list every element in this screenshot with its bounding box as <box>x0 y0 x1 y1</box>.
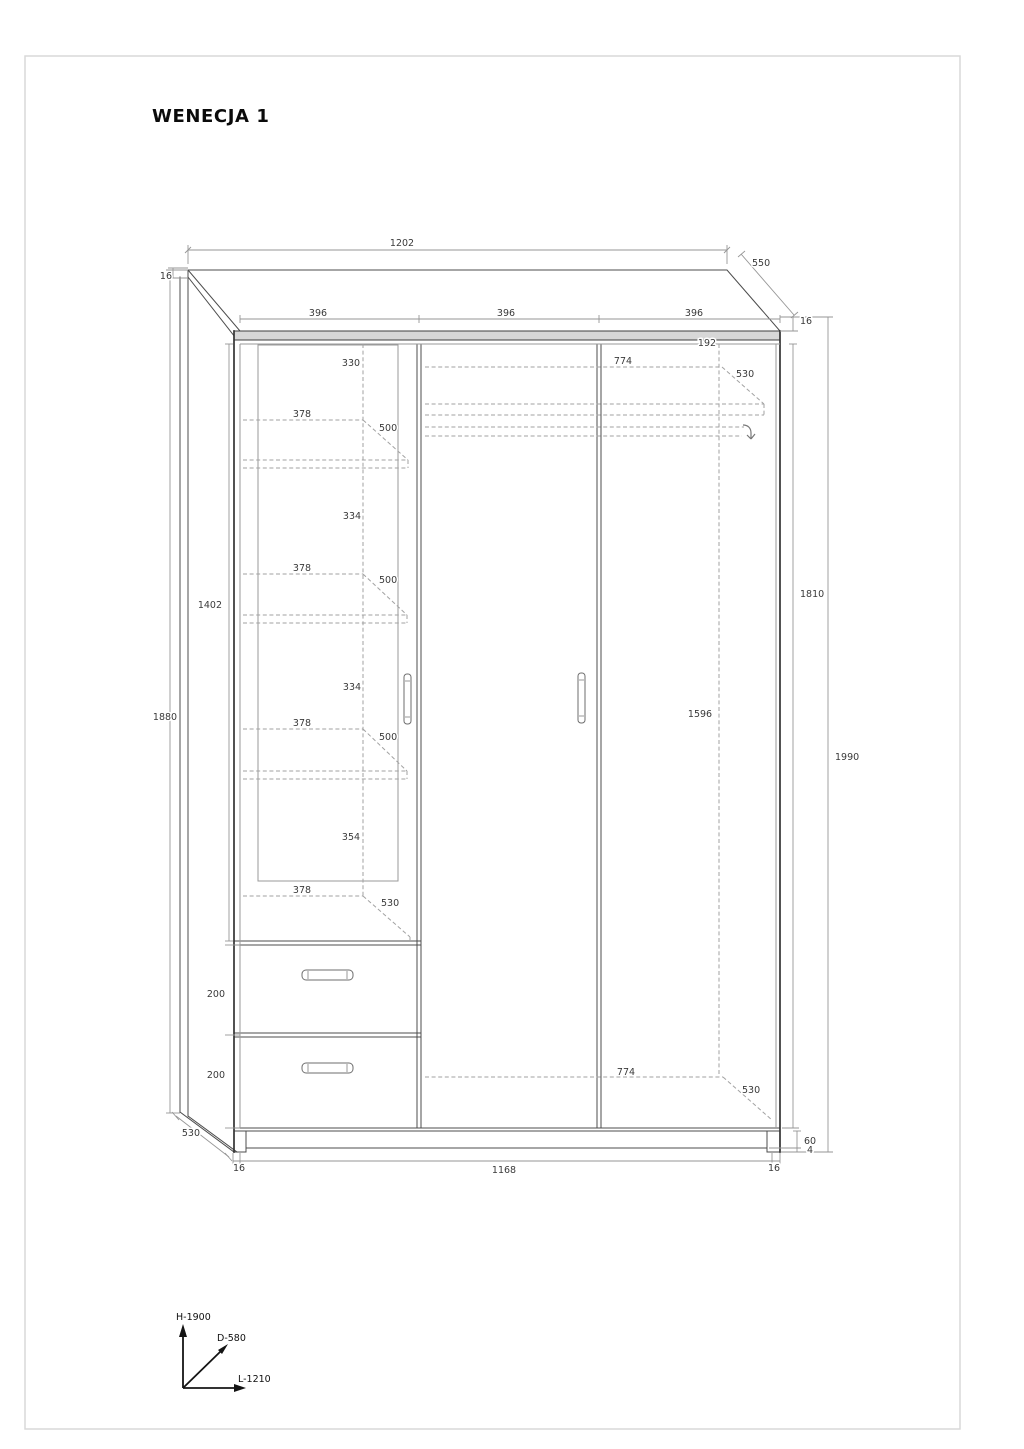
dim-label-door-width-3: 396 <box>685 308 703 319</box>
dim-label-bottom-shelf-width: 774 <box>617 1067 635 1078</box>
dim-label-top-thickness-right: 16 <box>800 316 812 327</box>
dim-label-drawer2-height: 200 <box>207 1070 225 1081</box>
dim-label-top-gap: 192 <box>698 338 716 349</box>
dim-label-side-depth: 530 <box>182 1128 200 1139</box>
dim-label-top-shelf-width: 774 <box>614 356 632 367</box>
dim-label-shelf1-width: 378 <box>293 409 311 420</box>
dim-label-interior-height: 1402 <box>198 600 222 611</box>
dim-label-shelf4-gap: 354 <box>342 832 360 843</box>
dim-label-top-thickness-left: 16 <box>160 271 172 282</box>
sheet-border <box>25 56 960 1429</box>
dim-label-top-shelf-depth: 530 <box>736 369 754 380</box>
dim-label-side-height: 1880 <box>153 712 177 723</box>
axis-length-label: L-1210 <box>238 1374 271 1385</box>
dim-label-shelf3-width: 378 <box>293 718 311 729</box>
dim-label-hanging-height: 1596 <box>688 709 712 720</box>
center-door-handle <box>578 673 585 723</box>
dim-label-door-width-2: 396 <box>497 308 515 319</box>
dim-label-side-thickness-right: 16 <box>768 1163 780 1174</box>
wardrobe-top-panel <box>188 270 780 340</box>
glass-door-handle <box>404 674 411 724</box>
dim-label-inner-width: 1168 <box>492 1165 516 1176</box>
axis-depth-label: D-580 <box>217 1333 246 1344</box>
dim-label-total-width: 1202 <box>390 238 414 249</box>
dim-label-shelf4-depth: 530 <box>381 898 399 909</box>
dim-label-glass-top-offset: 330 <box>342 358 360 369</box>
technical-drawing: WENECJA 1 <box>0 0 1024 1449</box>
dim-label-door-width-1: 396 <box>309 308 327 319</box>
dim-label-door-height: 1810 <box>800 589 824 600</box>
dim-label-shelf3-gap: 334 <box>343 682 361 693</box>
dim-label-shelf3-depth: 500 <box>379 732 397 743</box>
axis-height-label: H-1900 <box>176 1312 211 1323</box>
drawing-sheet: WENECJA 1 <box>0 0 1024 1449</box>
dim-label-bottom-shelf-depth: 530 <box>742 1085 760 1096</box>
dim-label-top-depth: 550 <box>752 258 770 269</box>
dim-label-side-thickness-left: 16 <box>233 1163 245 1174</box>
dim-label-shelf2-gap: 334 <box>343 511 361 522</box>
drawer-2-handle <box>302 1063 353 1073</box>
dim-label-drawer1-height: 200 <box>207 989 225 1000</box>
page-title: WENECJA 1 <box>152 106 270 127</box>
dim-label-foot-height: 4 <box>807 1145 813 1156</box>
dim-label-shelf2-depth: 500 <box>379 575 397 586</box>
drawer-1-handle <box>302 970 353 980</box>
dim-label-shelf1-depth: 500 <box>379 423 397 434</box>
dim-label-total-height: 1990 <box>835 752 859 763</box>
dim-label-shelf4-width: 378 <box>293 885 311 896</box>
dim-label-shelf2-width: 378 <box>293 563 311 574</box>
